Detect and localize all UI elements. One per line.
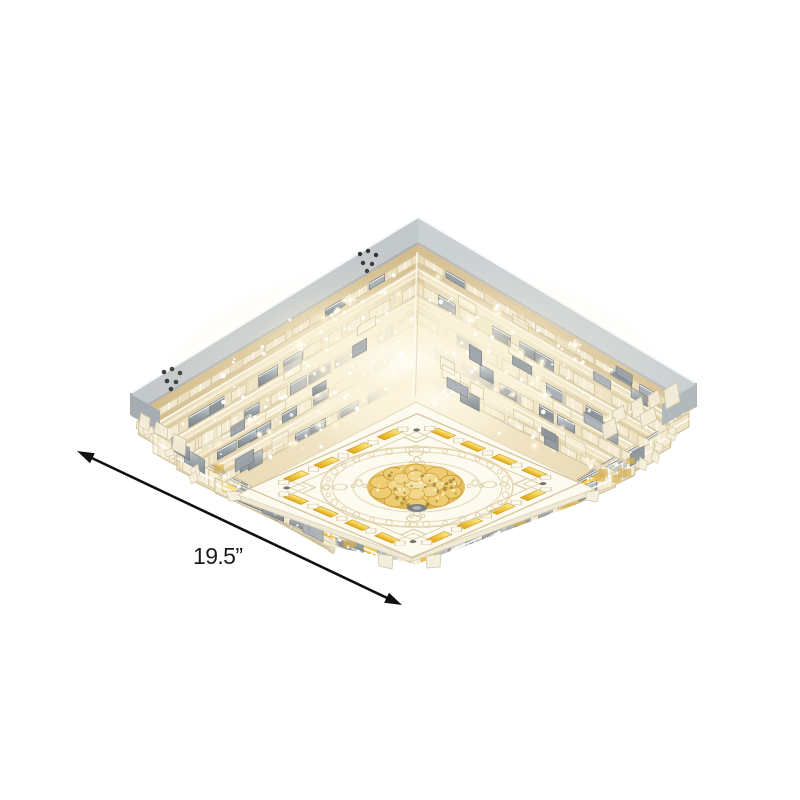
svg-text:19.5”: 19.5” xyxy=(193,543,242,569)
